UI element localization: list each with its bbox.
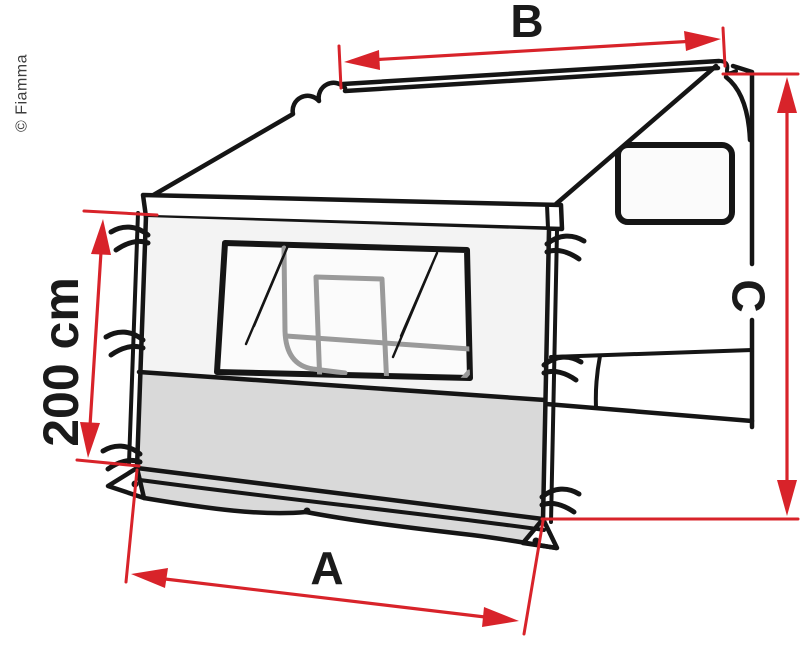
panel-tie xyxy=(106,332,143,355)
dimension-b-tick-left xyxy=(339,46,341,88)
dimension-height-arrowhead-up xyxy=(91,219,111,255)
dimension-a-arrowhead-left xyxy=(131,568,168,588)
panel-tie xyxy=(547,236,584,259)
dimension-a-label: A xyxy=(310,542,343,594)
dimension-b-tick-right xyxy=(723,28,725,66)
vehicle-skirt-seam xyxy=(596,356,600,407)
dimension-c-label: C xyxy=(722,279,774,312)
copyright-text: © Fiamma xyxy=(14,54,31,132)
awning-dimension-diagram: B C 200 cm A © Fiamma xyxy=(0,0,800,657)
panel-right-edge-outer xyxy=(551,231,557,522)
side-panel xyxy=(103,213,584,548)
vehicle-bottom-edge xyxy=(546,404,752,421)
vehicle-corner-curve xyxy=(726,77,750,140)
panel-tie xyxy=(542,489,579,512)
panel-tie xyxy=(111,227,148,250)
dimension-height-label: 200 cm xyxy=(33,277,89,447)
panel-grommet xyxy=(304,508,311,515)
dimension-c-arrowhead-up xyxy=(777,77,797,113)
vehicle-skirt-top-line xyxy=(551,350,752,357)
panel-left-hem-flap xyxy=(108,468,144,498)
awning-lead-bar-end-cap-divider xyxy=(547,205,548,228)
diagram-svg: B C 200 cm A © Fiamma xyxy=(0,0,800,657)
dimension-a-arrowhead-right xyxy=(482,607,519,627)
dimension-height-line xyxy=(90,252,101,426)
dimension-b-arrowhead-left xyxy=(344,50,380,70)
dimension-b-label: B xyxy=(510,0,543,47)
panel-tie xyxy=(544,357,581,380)
dimension-b-arrowhead-right xyxy=(684,31,721,51)
dimension-c-arrowhead-down xyxy=(777,480,797,516)
vehicle-window xyxy=(618,145,732,222)
